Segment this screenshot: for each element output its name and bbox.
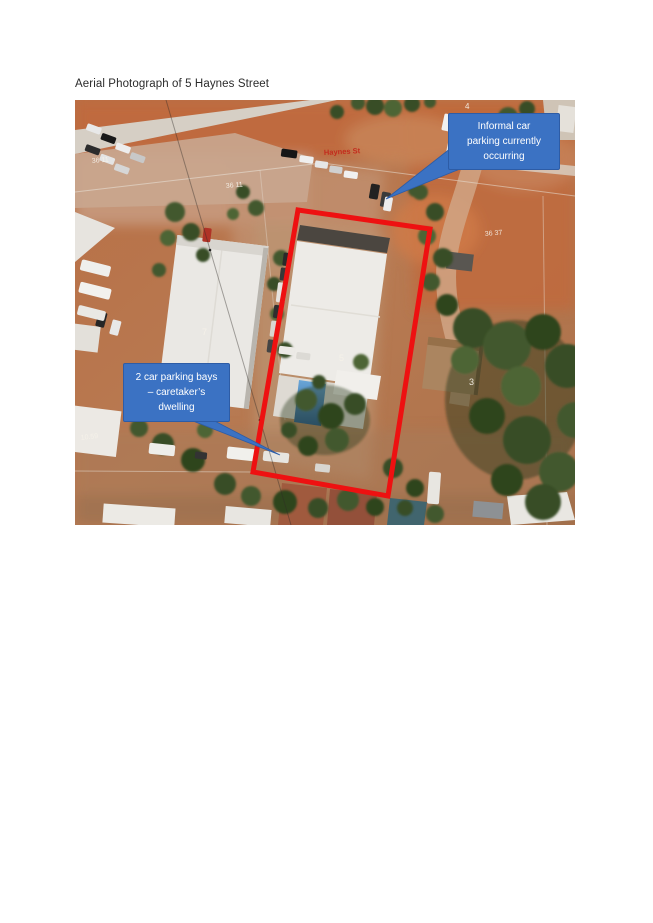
callout-informal-parking: Informal car parking currently occurring [448,113,560,170]
street-label: Haynes St [324,146,361,157]
warehouse-5-main [279,241,387,386]
callout-line: dwelling [158,400,194,415]
page-title: Aerial Photograph of 5 Haynes Street [75,78,269,90]
lot-label-5: 5 [339,353,344,363]
aerial-photo: Haynes St 36 11 36 11 4 36 37 7 5 3 10.5… [75,100,575,525]
callout-line: – caretaker’s [148,385,205,400]
roof-1059 [75,405,121,457]
lot-label-4: 4 [465,102,470,111]
lot-label-3: 3 [469,377,474,387]
lot-label-3611-b: 36 11 [226,182,244,190]
document-page: Aerial Photograph of 5 Haynes Street [0,0,653,923]
callout-line: Informal car [478,119,531,134]
lot-label-7: 7 [202,327,207,337]
grey-shed-bottom [472,501,503,520]
callout-line: 2 car parking bays [136,370,218,385]
lot-label-3611-a: 36 11 [92,157,110,165]
callout-line: occurring [483,149,524,164]
callout-line: parking currently [467,134,541,149]
callout-caretaker-dwelling: 2 car parking bays – caretaker’s dwellin… [123,363,230,422]
side-sheds [75,323,101,352]
